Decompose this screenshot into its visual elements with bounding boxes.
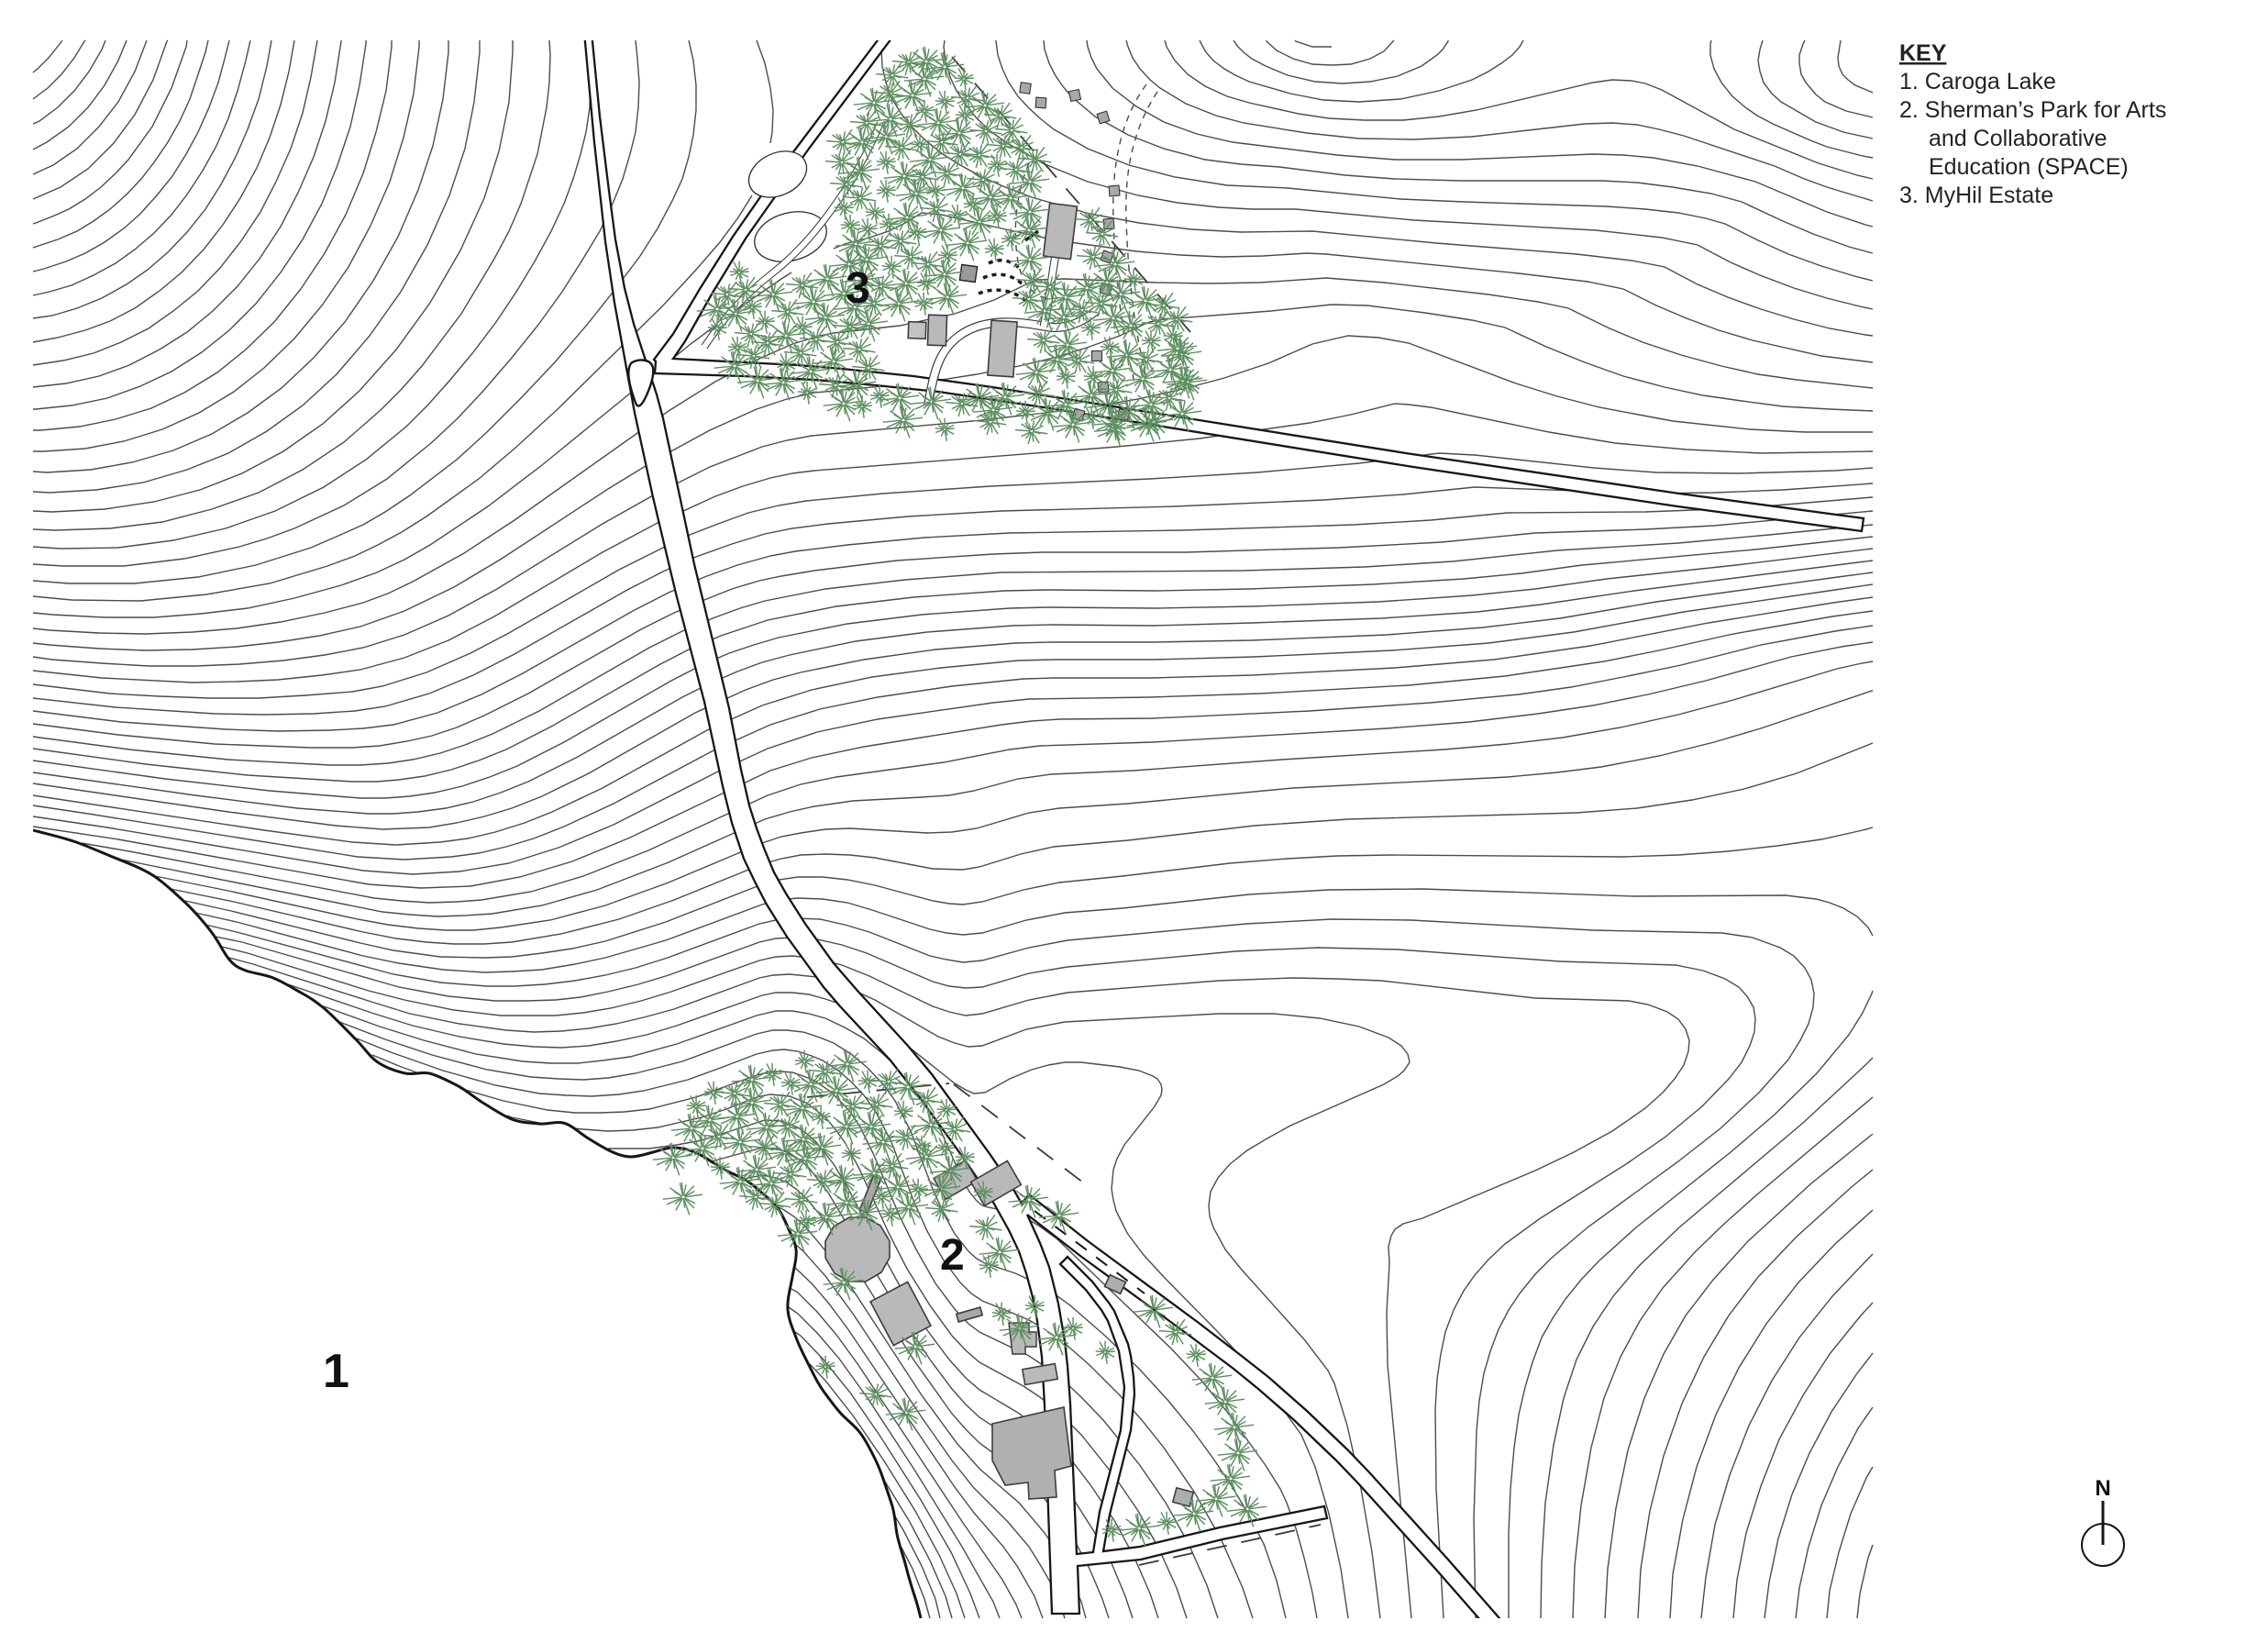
svg-text:2. Sherman’s Park for Arts: 2. Sherman’s Park for Arts xyxy=(1899,97,2166,123)
svg-text:KEY: KEY xyxy=(1899,40,1947,66)
svg-text:2: 2 xyxy=(940,1231,965,1280)
svg-text:and Collaborative: and Collaborative xyxy=(1929,126,2108,151)
svg-text:1. Caroga Lake: 1. Caroga Lake xyxy=(1899,69,2056,94)
svg-text:Education (SPACE): Education (SPACE) xyxy=(1929,154,2129,180)
svg-text:3. MyHil Estate: 3. MyHil Estate xyxy=(1899,183,2053,208)
svg-text:N: N xyxy=(2095,1476,2110,1501)
svg-text:3: 3 xyxy=(846,264,870,313)
svg-text:1: 1 xyxy=(323,1345,349,1398)
